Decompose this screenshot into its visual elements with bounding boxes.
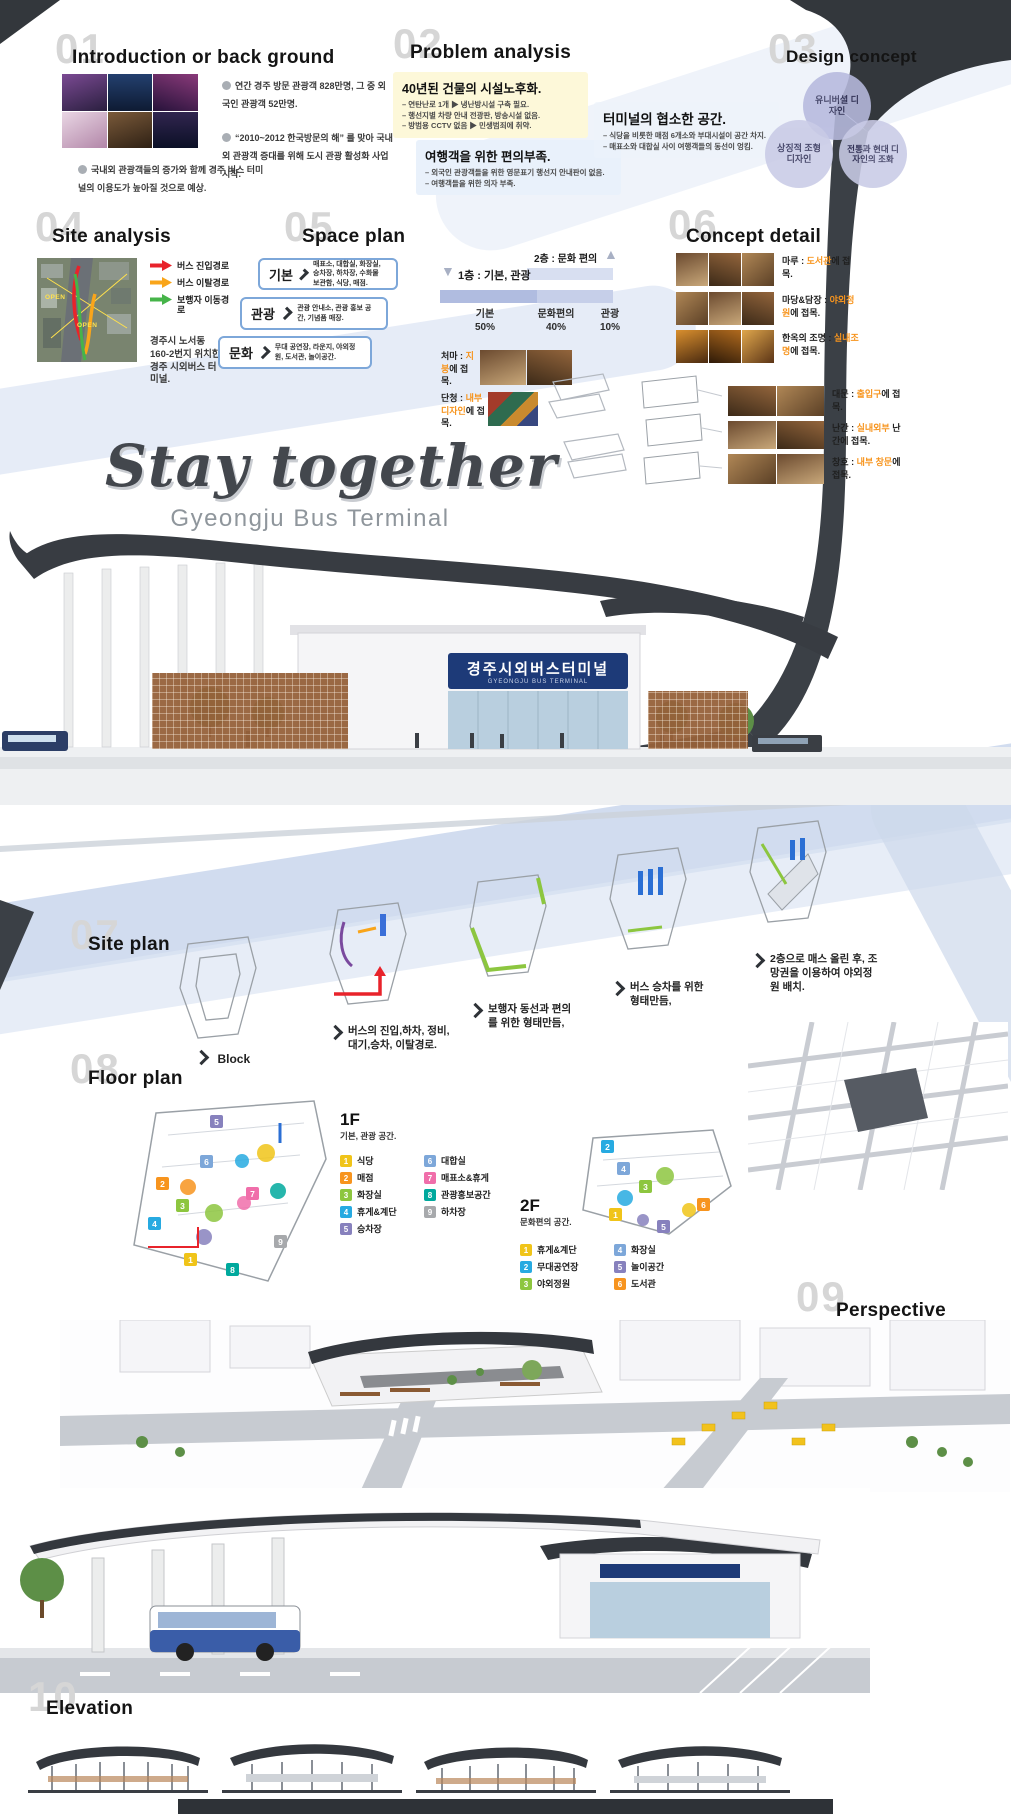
satellite-map-drawing xyxy=(37,258,137,362)
chevron-right-icon xyxy=(279,307,293,321)
legend-name: 휴게&계단 xyxy=(357,1206,397,1218)
hanok-photo xyxy=(742,330,774,363)
legend-number: 2 xyxy=(340,1172,352,1184)
plan-chip: 5 xyxy=(657,1220,670,1233)
concept-photos-daemun xyxy=(728,386,824,416)
legend-number: 5 xyxy=(340,1223,352,1235)
legend-name: 관광홍보공간 xyxy=(441,1189,491,1201)
legend-name: 놀이공간 xyxy=(631,1261,664,1273)
plan-chip: 4 xyxy=(148,1217,161,1230)
city-map-drawing xyxy=(748,1022,1008,1190)
problem-heading: 40년된 건물의 시설노후화. xyxy=(402,78,579,97)
elevation-drawing xyxy=(610,1732,790,1796)
section-title-site-analysis: Site analysis xyxy=(52,226,171,248)
wood-lattice-screen xyxy=(648,691,748,749)
space-row-culture: 문화 무대 공연장, 라운지, 야외정원, 도서관, 놀이공간. xyxy=(218,336,372,369)
venn-circle-tradition-modern: 전통과 현대 디자인의 조화 xyxy=(839,120,907,188)
hanok-photo xyxy=(676,253,708,286)
adapt-name: 단청 : xyxy=(441,393,463,403)
intro-note-text: 국내외 관광객들의 증가와 함께 경주 버스 터미널의 이용도가 높아질 것으로… xyxy=(78,165,263,193)
chevron-right-icon xyxy=(297,268,309,280)
problem-item: – 행선지별 차량 안내 전광판, 방송시설 없음. xyxy=(402,111,579,122)
legend-name: 매점 xyxy=(357,1172,374,1184)
problem-item: – 방범용 CCTV 없음 ▶ 민생범죄에 취약. xyxy=(402,121,579,132)
step-caption: 버스 승차를 위한 형태만듬, xyxy=(630,980,716,1008)
siteplan-diagram-boarding xyxy=(598,841,698,953)
cd-name: 대문 xyxy=(832,389,849,399)
legend-label: 버스 진입경로 xyxy=(177,260,229,272)
plan-chip: 6 xyxy=(200,1155,213,1168)
floorplan-1f-legend-col1: 1식당 2매점 3화장실 4휴게&계단 5승차장 xyxy=(340,1155,397,1240)
siteplan-diagram-mass xyxy=(738,814,838,926)
plan-chip: 8 xyxy=(226,1263,239,1276)
site-analysis-map: OPEN OPEN xyxy=(37,258,137,362)
space-row-label: 관광 xyxy=(251,304,275,323)
problem-item: – 연탄난로 1개 ▶ 냉난방시설 구축 필요. xyxy=(402,100,579,111)
aerial-rendering xyxy=(60,1320,1010,1492)
siteplan-step-1: Block xyxy=(196,1050,250,1068)
wood-lattice-screen xyxy=(152,673,348,749)
step-caption: 2층으로 매스 올린 후, 조망권을 이용하여 야외정원 배치. xyxy=(770,952,880,995)
chevron-right-icon xyxy=(328,1025,344,1041)
floorplan-1f-outline xyxy=(118,1095,333,1290)
cd-name: 난간 xyxy=(832,423,849,433)
poster-title: Stay together xyxy=(105,432,558,500)
space-row-detail: 매표소, 대합실, 화장실, 승차장, 하차장, 수화물 보관함, 식당, 매점… xyxy=(313,260,387,288)
floor1-label: 1층 : 기본, 관광 xyxy=(458,267,531,283)
cd-sep: : xyxy=(849,457,857,467)
chart-segment-tour: 관광 10% xyxy=(588,308,632,334)
legend-number: 1 xyxy=(520,1244,532,1256)
section-title-problem: Problem analysis xyxy=(410,42,571,64)
hanok-photo xyxy=(742,253,774,286)
legend-name: 식당 xyxy=(357,1155,374,1167)
legend-row: 버스 이탈경로 xyxy=(150,277,240,289)
siteplan-step-3: 보행자 동선과 편의를 위한 형태만듬, xyxy=(470,1002,580,1030)
floorplan-2f-legend-col2: 4화장실 5놀이공간 6도서관 xyxy=(614,1244,664,1295)
siteplan-step-4: 버스 승차를 위한 형태만듬, xyxy=(612,980,716,1008)
hanok-photo xyxy=(728,454,776,484)
cd-highlight: 내부 창문 xyxy=(857,457,893,467)
venn-circle-symbolic: 상징적 조형 디자인 xyxy=(765,120,833,188)
plan-chip: 5 xyxy=(210,1115,223,1128)
bullet-dot-icon xyxy=(222,81,231,90)
intro-note-1: 연간 경주 방문 관광객 828만명, 그 중 외국인 관광객 52만명. xyxy=(222,76,387,112)
intro-note-text: 연간 경주 방문 관광객 828만명, 그 중 외국인 관광객 52만명. xyxy=(222,81,386,109)
terminal-sign-english: GYEONGJU BUS TERMINAL xyxy=(488,679,589,685)
step-caption: 보행자 동선과 편의를 위한 형태만듬, xyxy=(488,1002,580,1030)
segment-pct: 10% xyxy=(588,321,632,334)
legend-label: 버스 이탈경로 xyxy=(177,277,229,289)
legend-name: 대합실 xyxy=(441,1155,466,1167)
section-title-concept-detail: Concept detail xyxy=(686,226,821,248)
venn-label: 유니버셜 디자인 xyxy=(812,95,862,117)
legend-name: 무대공연장 xyxy=(537,1261,578,1273)
legend-number: 4 xyxy=(340,1206,352,1218)
floorplan-2f-drawing: 2 4 3 1 6 5 xyxy=(573,1126,738,1238)
chart-segment-culture: 문화편의 40% xyxy=(524,308,588,334)
elevation-sketches xyxy=(636,372,726,492)
cd-tail: 에 접목. xyxy=(790,346,820,356)
intro-photo xyxy=(108,112,153,149)
floorplan-1f-legend-col2: 6대합실 7매표소&휴게 8관광홍보공간 9하차장 xyxy=(424,1155,491,1223)
plan-chip: 2 xyxy=(601,1140,614,1153)
hanok-photo xyxy=(777,454,825,484)
cd-name: 창호 xyxy=(832,457,849,467)
hanok-photo xyxy=(728,421,776,449)
up-arrow-icon: ▲ xyxy=(604,247,618,261)
down-arrow-icon: ▼ xyxy=(441,264,455,278)
problem-heading: 여행객을 위한 편의부족. xyxy=(425,146,612,165)
floorplan-1f-drawing: 5 6 2 3 4 1 7 8 9 xyxy=(118,1095,333,1290)
floor2-bar xyxy=(527,268,613,280)
site-analysis-legend: 버스 진입경로 버스 이탈경로 보행자 이동경로 xyxy=(150,260,240,321)
site-address: 경주시 노서동 160-2번지 위치한 경주 시외버스 터미널. xyxy=(150,336,222,387)
segment-pct: 40% xyxy=(524,321,588,334)
hanok-photo xyxy=(709,292,741,325)
cd-sep: : xyxy=(826,333,834,343)
intro-note-3: 국내외 관광객들의 증가와 함께 경주 버스 터미널의 이용도가 높아질 것으로… xyxy=(78,160,268,196)
hanok-photo xyxy=(709,253,741,286)
hanok-photo xyxy=(777,421,825,449)
floorplan-1f-header: 1F 기본, 관광 공간. xyxy=(340,1110,396,1142)
elevation-drawing xyxy=(416,1732,596,1796)
section-title-intro: Introduction or back ground xyxy=(72,47,334,69)
segment-pct: 50% xyxy=(458,321,512,334)
elevation-drawing xyxy=(28,1732,208,1796)
concept-photos-maru xyxy=(676,253,774,286)
floorplan-2f-legend-col1: 1휴게&계단 2무대공연장 3야외정원 xyxy=(520,1244,578,1295)
legend-row: 보행자 이동경로 xyxy=(150,294,240,317)
problem-heading: 터미널의 협소한 공간. xyxy=(603,108,770,128)
intro-photo xyxy=(153,74,198,111)
hanok-roof-photo xyxy=(480,350,526,385)
space-row-detail: 관광 안내소, 관광 홍보 공간, 기념품 매장. xyxy=(297,304,377,323)
cd-tail: 에 접목. xyxy=(790,308,820,318)
hanok-photo xyxy=(676,330,708,363)
adapt-name: 처마 : xyxy=(441,351,463,361)
plan-chip: 1 xyxy=(609,1208,622,1221)
cd-sep: : xyxy=(822,295,830,305)
legend-number: 9 xyxy=(424,1206,436,1218)
plan-chip: 3 xyxy=(176,1199,189,1212)
problem-item: – 식당을 비롯한 매점 6개소와 부대시설이 공간 차지. xyxy=(603,131,770,142)
floorplan-2f-header: 2F 문화편의 공간. xyxy=(520,1196,572,1228)
legend-name: 도서관 xyxy=(631,1278,656,1290)
problem-box-convenience: 여행객을 위한 편의부족. – 외국인 관광객들을 위한 영문표기 행선지 안내… xyxy=(416,140,621,195)
problem-item: – 여행객들을 위한 의자 부족. xyxy=(425,179,612,190)
bullet-dot-icon xyxy=(78,165,87,174)
hanok-photo xyxy=(709,330,741,363)
chevron-right-icon xyxy=(610,981,626,997)
hanok-photo xyxy=(742,292,774,325)
dancheong-photo xyxy=(488,392,538,426)
presentation-board: 01 Introduction or back ground 연간 경주 방문 … xyxy=(0,0,1011,1814)
hanok-photo xyxy=(676,292,708,325)
chart-segment-basic: 기본 50% xyxy=(458,308,512,334)
legend-name: 매표소&휴게 xyxy=(441,1172,489,1184)
legend-number: 6 xyxy=(614,1278,626,1290)
cd-sep: : xyxy=(849,389,857,399)
legend-name: 화장실 xyxy=(357,1189,382,1201)
design-concept-venn: 유니버셜 디자인 상징적 조형 디자인 전통과 현대 디자인의 조화 xyxy=(765,72,910,194)
section-title-design-concept: Design concept xyxy=(786,47,917,67)
siteplan-diagram-bus-routes xyxy=(318,896,418,1008)
section-title-space-plan: Space plan xyxy=(302,226,405,248)
section-title-floor-plan: Floor plan xyxy=(88,1068,183,1090)
chevron-right-icon xyxy=(257,346,270,359)
problem-item: – 외국인 관광객들을 위한 영문표기 행선지 안내판이 없음. xyxy=(425,168,612,179)
legend-name: 야외정원 xyxy=(537,1278,570,1290)
problem-box-space: 터미널의 협소한 공간. – 식당을 비롯한 매점 6개소와 부대시설이 공간 … xyxy=(594,102,779,158)
legend-name: 승차장 xyxy=(357,1223,382,1235)
legend-number: 5 xyxy=(614,1261,626,1273)
legend-name: 화장실 xyxy=(631,1244,656,1256)
concept-photos-lighting xyxy=(676,330,774,363)
cd-highlight: 실내외부 xyxy=(857,423,890,433)
legend-name: 하차장 xyxy=(441,1206,466,1218)
step-caption: Block xyxy=(217,1052,250,1066)
problem-item: – 매표소와 대합실 사이 여행객들의 동선이 엉킴. xyxy=(603,142,770,153)
concept-label-changho: 창호 : 내부 창문에 접목. xyxy=(832,456,904,481)
cd-sep: : xyxy=(849,423,857,433)
space-row-tour: 관광 관광 안내소, 관광 홍보 공간, 기념품 매장. xyxy=(240,297,388,330)
plan-chip: 1 xyxy=(184,1253,197,1266)
plan-chip: 4 xyxy=(617,1162,630,1175)
segment-name: 관광 xyxy=(588,308,632,321)
plan-chip: 7 xyxy=(246,1187,259,1200)
terminal-rendering: 경주시외버스터미널 GYEONGJU BUS TERMINAL xyxy=(0,505,1011,805)
plan-chip: 6 xyxy=(697,1198,710,1211)
section-title-elevation: Elevation xyxy=(46,1698,133,1720)
siteplan-step-2: 버스의 진입,하차, 정비,대기,승차, 이탈경로. xyxy=(330,1024,450,1052)
legend-label: 보행자 이동경로 xyxy=(177,294,235,317)
chevron-right-icon xyxy=(468,1003,484,1019)
concept-photos-madang xyxy=(676,292,774,325)
legend-row: 버스 진입경로 xyxy=(150,260,240,272)
mass-sketch xyxy=(558,430,630,482)
hanok-photo xyxy=(777,386,825,416)
space-row-label: 문화 xyxy=(229,343,253,362)
map-open-label: OPEN xyxy=(77,322,97,329)
intro-photo xyxy=(62,112,107,149)
legend-number: 7 xyxy=(424,1172,436,1184)
floor-label: 2F xyxy=(520,1196,572,1216)
step-caption: 버스의 진입,하차, 정비,대기,승차, 이탈경로. xyxy=(348,1024,450,1052)
floor-subtitle: 기본, 관광 공간. xyxy=(340,1130,396,1142)
intro-photo xyxy=(108,74,153,111)
floor-label: 1F xyxy=(340,1110,396,1130)
cd-name: 한옥의 조명 xyxy=(782,333,826,343)
segment-name: 문화편의 xyxy=(524,308,588,321)
plan-chip: 2 xyxy=(156,1177,169,1190)
segment-name: 기본 xyxy=(458,308,512,321)
siteplan-diagram-pedestrian xyxy=(458,868,558,980)
cd-name: 마당&담장 xyxy=(782,295,822,305)
siteplan-step-5: 2층으로 매스 올린 후, 조망권을 이용하여 야외정원 배치. xyxy=(752,952,880,995)
cd-sep: : xyxy=(799,256,807,266)
street-rendering xyxy=(0,1488,870,1693)
adapt-cheoma: 처마 : 지붕에 접목. xyxy=(441,350,477,388)
cd-highlight: 출입구 xyxy=(857,389,882,399)
floorplan-2f-outline xyxy=(573,1126,738,1238)
concept-photos-changho xyxy=(728,454,824,484)
adapt-dancheong: 단청 : 내부디자인에 접목. xyxy=(441,392,485,430)
section-title-perspective: Perspective xyxy=(836,1300,946,1322)
section-title-site-plan: Site plan xyxy=(88,934,170,956)
cd-name: 마루 xyxy=(782,256,799,266)
legend-number: 1 xyxy=(340,1155,352,1167)
plan-chip: 3 xyxy=(639,1180,652,1193)
terminal-sign-korean: 경주시외버스터미널 xyxy=(467,658,609,679)
cd-highlight: 도서관 xyxy=(807,256,832,266)
legend-number: 4 xyxy=(614,1244,626,1256)
concept-photos-nangan xyxy=(728,421,824,449)
intro-photo xyxy=(153,112,198,149)
venn-label: 전통과 현대 디자인의 조화 xyxy=(845,144,901,164)
bus-exit-arrow-icon xyxy=(150,277,172,288)
bus-entry-arrow-icon xyxy=(150,260,172,271)
bullet-dot-icon xyxy=(222,133,231,142)
pedestrian-arrow-icon xyxy=(150,294,172,305)
terminal-sign: 경주시외버스터미널 GYEONGJU BUS TERMINAL xyxy=(448,653,628,689)
floor2-label: 2층 : 문화 편의 xyxy=(534,250,597,265)
legend-number: 3 xyxy=(520,1278,532,1290)
map-open-label: OPEN xyxy=(45,294,65,301)
space-row-basic: 기본 매표소, 대합실, 화장실, 승차장, 하차장, 수화물 보관함, 식당,… xyxy=(258,258,398,290)
concept-label-lighting: 한옥의 조명 : 실내조명에 접목. xyxy=(782,332,860,357)
legend-number: 2 xyxy=(520,1261,532,1273)
legend-number: 6 xyxy=(424,1155,436,1167)
intro-photo-collage xyxy=(62,74,198,148)
legend-number: 8 xyxy=(424,1189,436,1201)
concept-label-maru: 마루 : 도서관에 접목. xyxy=(782,255,860,280)
concept-label-madang: 마당&담장 : 야외정원에 접목. xyxy=(782,294,860,319)
concept-label-nangan: 난간 : 실내외부 난간에 접목. xyxy=(832,422,904,447)
hanok-photo xyxy=(728,386,776,416)
problem-box-aging: 40년된 건물의 시설노후화. – 연탄난로 1개 ▶ 냉난방시설 구축 필요.… xyxy=(393,72,588,138)
concept-label-daemun: 대문 : 출입구에 접목. xyxy=(832,388,904,413)
intro-photo xyxy=(62,74,107,111)
chevron-right-icon xyxy=(194,1050,210,1066)
legend-name: 휴게&계단 xyxy=(537,1244,577,1256)
venn-label: 상징적 조형 디자인 xyxy=(774,143,824,165)
mass-sketch xyxy=(545,368,615,422)
siteplan-diagram-block xyxy=(168,930,268,1042)
elevation-drawing xyxy=(222,1732,402,1796)
plan-chip: 9 xyxy=(274,1235,287,1248)
legend-number: 3 xyxy=(340,1189,352,1201)
floor-subtitle: 문화편의 공간. xyxy=(520,1216,572,1228)
floor1-bar xyxy=(440,290,613,303)
space-row-label: 기본 xyxy=(269,265,293,284)
space-row-detail: 무대 공연장, 라운지, 야외정원, 도서관, 놀이공간. xyxy=(275,343,361,362)
chevron-right-icon xyxy=(750,953,766,969)
